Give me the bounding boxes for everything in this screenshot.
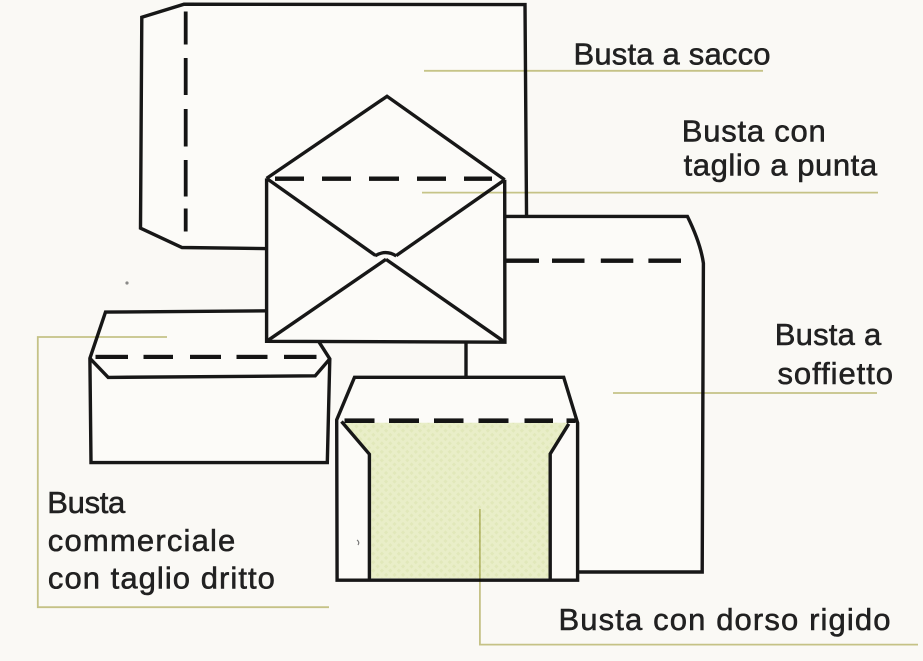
svg-text:taglio a punta: taglio a punta [684, 147, 878, 182]
svg-text:Busta con: Busta con [682, 113, 826, 148]
svg-text:Busta: Busta [47, 485, 126, 520]
svg-text:commerciale: commerciale [48, 523, 236, 558]
svg-text:soffietto: soffietto [778, 356, 894, 391]
svg-text:con taglio dritto: con taglio dritto [48, 561, 275, 596]
svg-text:Busta a: Busta a [775, 317, 882, 352]
svg-text:Busta con dorso rigido: Busta con dorso rigido [559, 602, 891, 637]
svg-text:Busta a sacco: Busta a sacco [574, 37, 771, 72]
